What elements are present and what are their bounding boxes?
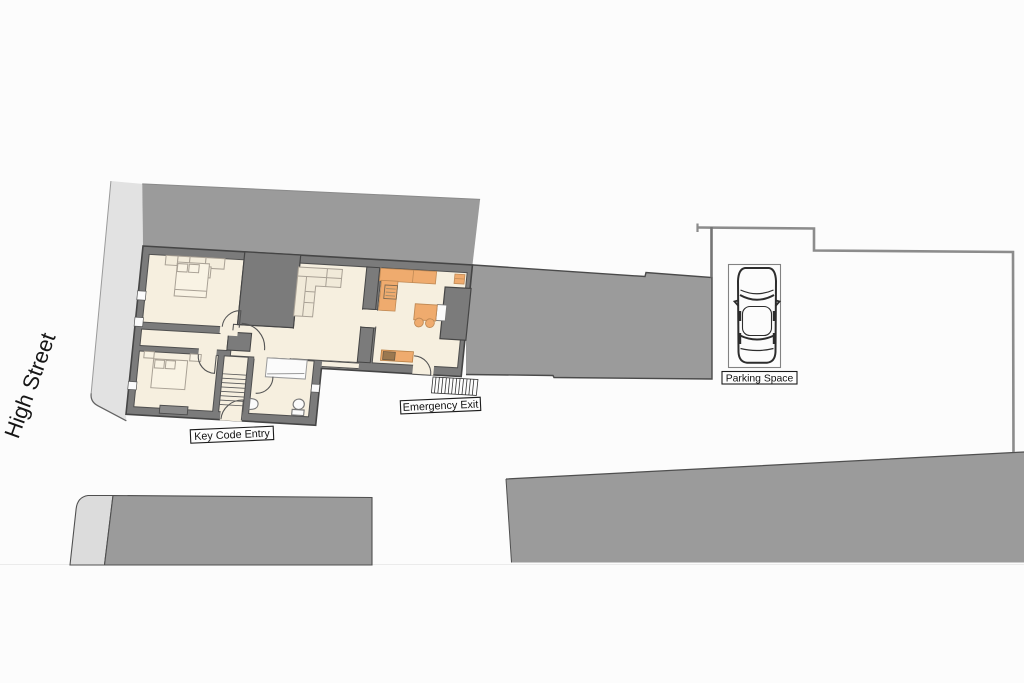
- svg-text:Parking Space: Parking Space: [726, 373, 794, 384]
